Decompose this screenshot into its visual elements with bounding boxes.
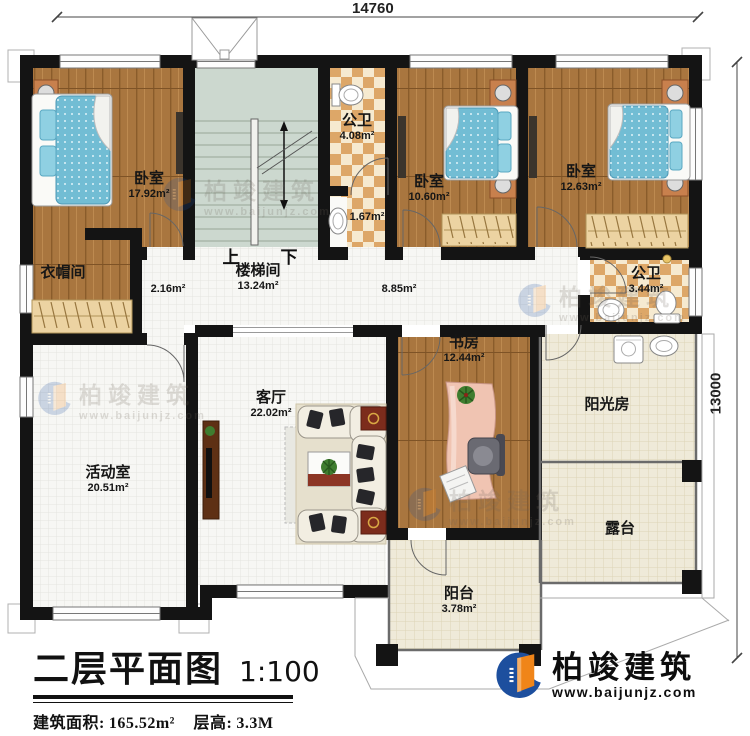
desk-plant: [457, 386, 475, 404]
side-table: [361, 407, 386, 430]
title-block: 二层平面图 1:100 建筑面积:165.52m² 层高:3.3M: [33, 640, 320, 733]
closet-wardrobe: [32, 300, 132, 333]
watermark-url: www.baijunjz.com: [79, 410, 206, 422]
washing-machine: [614, 336, 643, 363]
room-label-sunroom: 阳光房: [584, 396, 629, 414]
living-opening: [233, 328, 353, 333]
double-bed: [444, 106, 518, 180]
watermark-logo-icon: [515, 281, 553, 321]
room-label-terrace: 露台: [605, 520, 635, 538]
hall-floor: [142, 247, 184, 345]
room-floors: [32, 67, 697, 650]
side-table: [361, 511, 386, 534]
company-logo-icon: [492, 648, 544, 704]
dimension-width: 14760: [352, 0, 394, 17]
dimension-height: 13000: [707, 373, 724, 415]
nightstand: [490, 80, 516, 106]
area-label: 建筑面积:: [33, 715, 105, 732]
watermark-brand: 柏竣建筑: [79, 376, 206, 410]
coffee-table: [308, 452, 350, 486]
double-bed: [608, 104, 690, 180]
room-label-bedroom1: 卧室 17.92m²: [129, 170, 170, 201]
double-bed: [32, 94, 112, 206]
sunroom-terrace-floor: [540, 334, 697, 583]
room-label-balcony: 阳台 3.78m²: [442, 585, 477, 616]
title-underline: [33, 695, 293, 703]
entry-canopy: [192, 18, 257, 60]
watermark: 柏竣建筑 www.baijunjz.com: [405, 482, 576, 528]
stairs-down-label: 下: [281, 243, 298, 268]
room-label-bedroom3: 卧室 12.63m²: [561, 163, 602, 194]
tv-cabinet: [203, 421, 219, 519]
company-logo: 柏竣建筑 www.baijunjz.com: [492, 648, 697, 704]
room-label-bath2: 公卫 3.44m²: [629, 265, 664, 296]
toilet: [332, 84, 363, 106]
watermark-brand: 柏竣建筑: [449, 482, 576, 516]
watermark-brand: 柏竣建筑: [204, 172, 331, 206]
watermark-url: www.baijunjz.com: [204, 206, 331, 218]
room-label-living: 客厅 22.02m²: [251, 389, 292, 420]
laundry-sink: [650, 336, 678, 356]
tv-panel: [398, 116, 406, 178]
tv-panel: [529, 116, 537, 178]
area-value: 165.52m²: [109, 715, 175, 732]
floorplan-page: 柏竣建筑 www.baijunjz.com 柏竣建筑 www.baijunjz.…: [0, 0, 750, 736]
room-label-closet: 衣帽间: [40, 264, 85, 282]
floorplan-drawing: [0, 0, 750, 736]
watermark: 柏竣建筑 www.baijunjz.com: [160, 172, 331, 218]
nightstand: [662, 80, 688, 106]
room-label-corridor: 8.85m²: [382, 283, 417, 296]
watermark: 柏竣建筑 www.baijunjz.com: [35, 376, 206, 422]
room-label-stairwell: 楼梯间 13.24m²: [235, 262, 280, 293]
watermark-brand: 柏竣建筑: [559, 278, 686, 312]
floor-height-value: 3.3M: [236, 715, 273, 732]
company-name: 柏竣建筑: [552, 652, 697, 685]
watermark-logo-icon: [35, 379, 73, 419]
watermark-url: www.baijunjz.com: [449, 516, 576, 528]
floor-height-label: 层高:: [193, 715, 232, 732]
room-label-activity: 活动室 20.51m²: [85, 464, 130, 495]
watermark-url: www.baijunjz.com: [559, 312, 686, 324]
ceiling-lamp: [663, 255, 671, 263]
room-label-study: 书房 12.44m²: [444, 334, 485, 365]
washbasin: [329, 208, 347, 234]
drawing-scale: 1:100: [239, 655, 320, 688]
room-label-bedroom2: 卧室 10.60m²: [409, 173, 450, 204]
watermark-logo-icon: [405, 485, 443, 525]
room-label-bath1-sub: 1.67m²: [350, 211, 385, 224]
office-chair: [468, 434, 505, 476]
title-info: 建筑面积:165.52m² 层高:3.3M: [33, 709, 320, 733]
company-url: www.baijunjz.com: [552, 684, 697, 700]
room-label-hall: 2.16m²: [151, 283, 186, 296]
room-label-bath1: 公卫 4.08m²: [340, 112, 375, 143]
page-title: 二层平面图: [33, 640, 223, 692]
tv-panel: [176, 112, 183, 174]
